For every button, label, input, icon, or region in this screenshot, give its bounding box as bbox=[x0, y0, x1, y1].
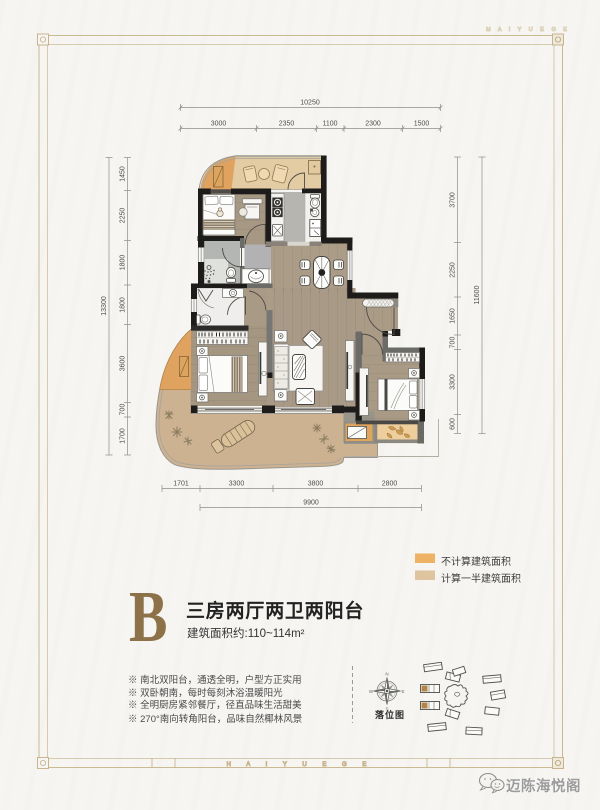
svg-text:W: W bbox=[369, 689, 374, 694]
svg-text:3000: 3000 bbox=[211, 121, 227, 128]
svg-text:13300: 13300 bbox=[101, 296, 108, 316]
svg-text:2250: 2250 bbox=[120, 208, 127, 224]
svg-text:E: E bbox=[401, 689, 404, 694]
svg-text:10250: 10250 bbox=[300, 100, 320, 107]
svg-text:M A I Y U E G E: M A I Y U E G E bbox=[486, 27, 570, 33]
svg-text:3700: 3700 bbox=[450, 192, 457, 208]
svg-text:1700: 1700 bbox=[120, 428, 127, 444]
svg-text:1500: 1500 bbox=[414, 121, 430, 128]
svg-text:3300: 3300 bbox=[229, 481, 245, 488]
svg-text:600: 600 bbox=[450, 418, 457, 430]
svg-text:1800: 1800 bbox=[120, 297, 127, 313]
svg-text:3300: 3300 bbox=[450, 374, 457, 390]
svg-text:1800: 1800 bbox=[120, 255, 127, 271]
svg-text:1701: 1701 bbox=[173, 481, 189, 488]
svg-text:11600: 11600 bbox=[474, 285, 481, 304]
svg-text:2250: 2250 bbox=[450, 262, 457, 278]
svg-text:1100: 1100 bbox=[322, 121, 337, 128]
svg-text:700: 700 bbox=[120, 404, 127, 416]
svg-text:3800: 3800 bbox=[308, 481, 324, 488]
svg-text:2350: 2350 bbox=[279, 121, 295, 128]
svg-text:9900: 9900 bbox=[303, 500, 319, 507]
svg-text:700: 700 bbox=[450, 337, 457, 349]
svg-text:H A I Y U E G E: H A I Y U E G E bbox=[227, 762, 374, 768]
svg-text:2800: 2800 bbox=[382, 481, 398, 488]
svg-text:3600: 3600 bbox=[120, 356, 127, 372]
svg-text:N: N bbox=[385, 672, 388, 677]
svg-text:1650: 1650 bbox=[450, 308, 457, 324]
svg-text:2300: 2300 bbox=[365, 121, 381, 128]
svg-text:1450: 1450 bbox=[120, 166, 127, 182]
